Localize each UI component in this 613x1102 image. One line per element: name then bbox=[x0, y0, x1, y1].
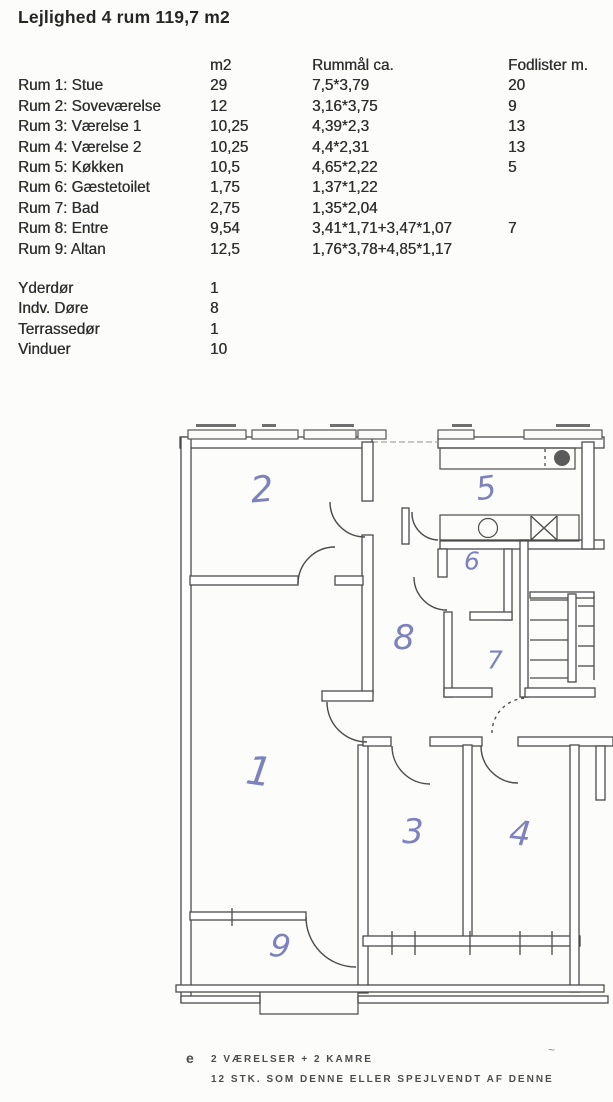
door-terrace bbox=[306, 917, 356, 967]
hob-circle bbox=[554, 450, 570, 466]
room-number-2: 2 bbox=[249, 469, 275, 512]
floor-plan bbox=[0, 0, 613, 1102]
caption-line1: 2 VÆRELSER + 2 KAMRE bbox=[211, 1054, 373, 1065]
scan-smudges bbox=[196, 424, 590, 427]
room-number-8: 8 bbox=[393, 618, 415, 658]
stairs bbox=[530, 592, 594, 682]
scanned-floorplan-page: Lejlighed 4 rum 119,7 m2 m2 Rummål ca. F… bbox=[0, 0, 613, 1102]
door-entry-dashed bbox=[492, 698, 527, 733]
door-room3 bbox=[392, 746, 430, 784]
caption-marker: e bbox=[186, 1050, 194, 1066]
door-wc bbox=[414, 577, 447, 610]
stove-box bbox=[531, 516, 557, 540]
stray-mark: ~ bbox=[548, 1043, 555, 1057]
room-number-7: 7 bbox=[487, 646, 503, 675]
balcony-step bbox=[260, 992, 358, 1014]
door-room1-hall bbox=[327, 702, 367, 742]
walls-group bbox=[180, 437, 613, 1002]
kitchen-counter bbox=[440, 448, 579, 541]
door-room2 bbox=[330, 502, 365, 537]
room-number-3: 3 bbox=[402, 812, 424, 852]
door-kitchen bbox=[412, 512, 438, 540]
room-number-4: 4 bbox=[507, 813, 533, 855]
door-room1-room2 bbox=[298, 547, 335, 584]
room-number-6: 6 bbox=[464, 547, 480, 576]
balcony-slab-lines bbox=[176, 985, 608, 1014]
caption-line2: 12 STK. SOM DENNE ELLER SPEJLVENDT AF DE… bbox=[211, 1074, 554, 1085]
door-room4 bbox=[481, 746, 518, 783]
door-swings bbox=[298, 502, 527, 967]
sink-circle bbox=[479, 519, 498, 538]
